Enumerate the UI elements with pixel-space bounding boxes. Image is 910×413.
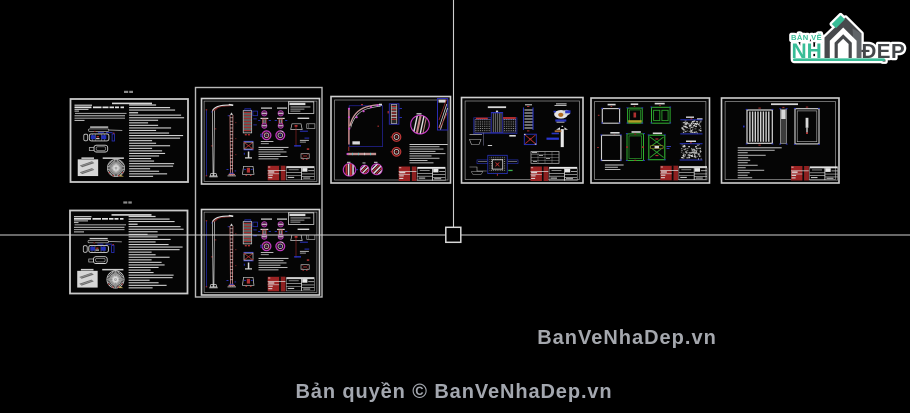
svg-text:Bản quyền © BanVeNhaDep.vn: Bản quyền © BanVeNhaDep.vn xyxy=(295,381,612,403)
svg-text:BanVeNhaDep.vn: BanVeNhaDep.vn xyxy=(537,327,717,349)
